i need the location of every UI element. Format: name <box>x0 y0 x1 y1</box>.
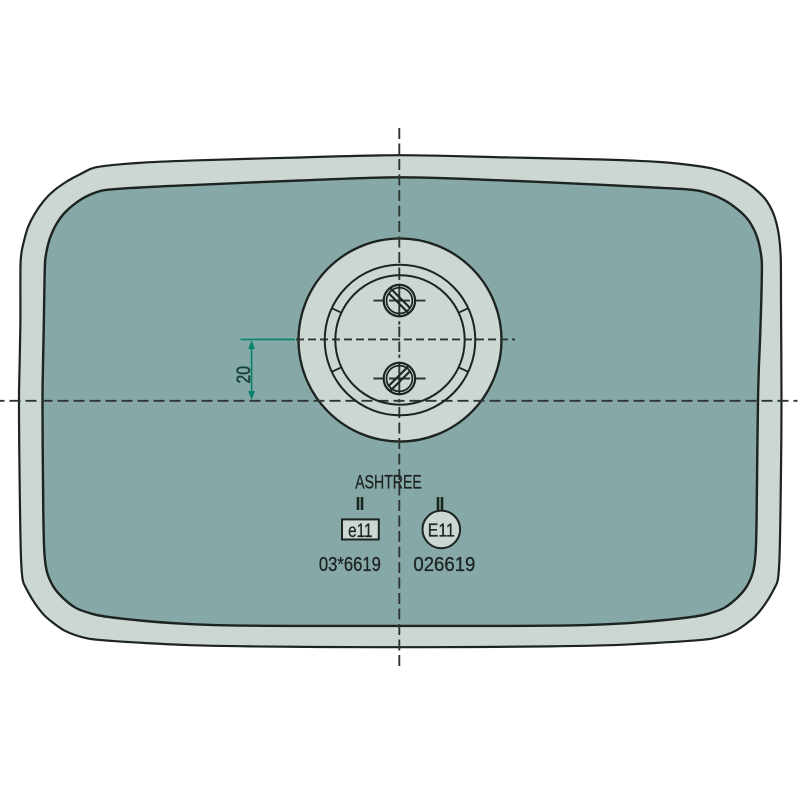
svg-text:03*6619: 03*6619 <box>319 553 381 576</box>
svg-text:026619: 026619 <box>413 553 475 576</box>
svg-text:20: 20 <box>234 366 255 384</box>
svg-text:e11: e11 <box>348 520 373 542</box>
svg-text:ASHTREE: ASHTREE <box>355 473 422 494</box>
svg-text:E11: E11 <box>428 520 455 540</box>
